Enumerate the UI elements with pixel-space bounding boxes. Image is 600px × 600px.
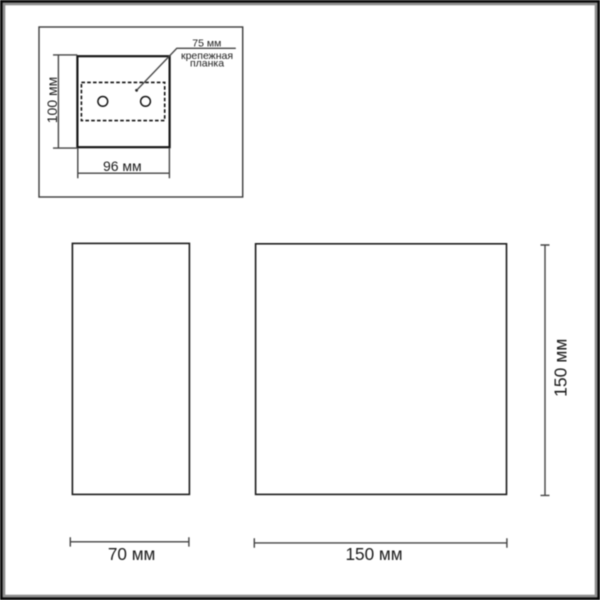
svg-text:планка: планка bbox=[190, 58, 224, 70]
svg-text:150 мм: 150 мм bbox=[550, 339, 570, 397]
svg-text:100 мм: 100 мм bbox=[44, 77, 60, 124]
svg-text:96 мм: 96 мм bbox=[103, 158, 142, 174]
svg-text:70 мм: 70 мм bbox=[108, 544, 156, 564]
svg-text:150 мм: 150 мм bbox=[345, 544, 402, 564]
svg-text:75 мм: 75 мм bbox=[192, 37, 221, 49]
